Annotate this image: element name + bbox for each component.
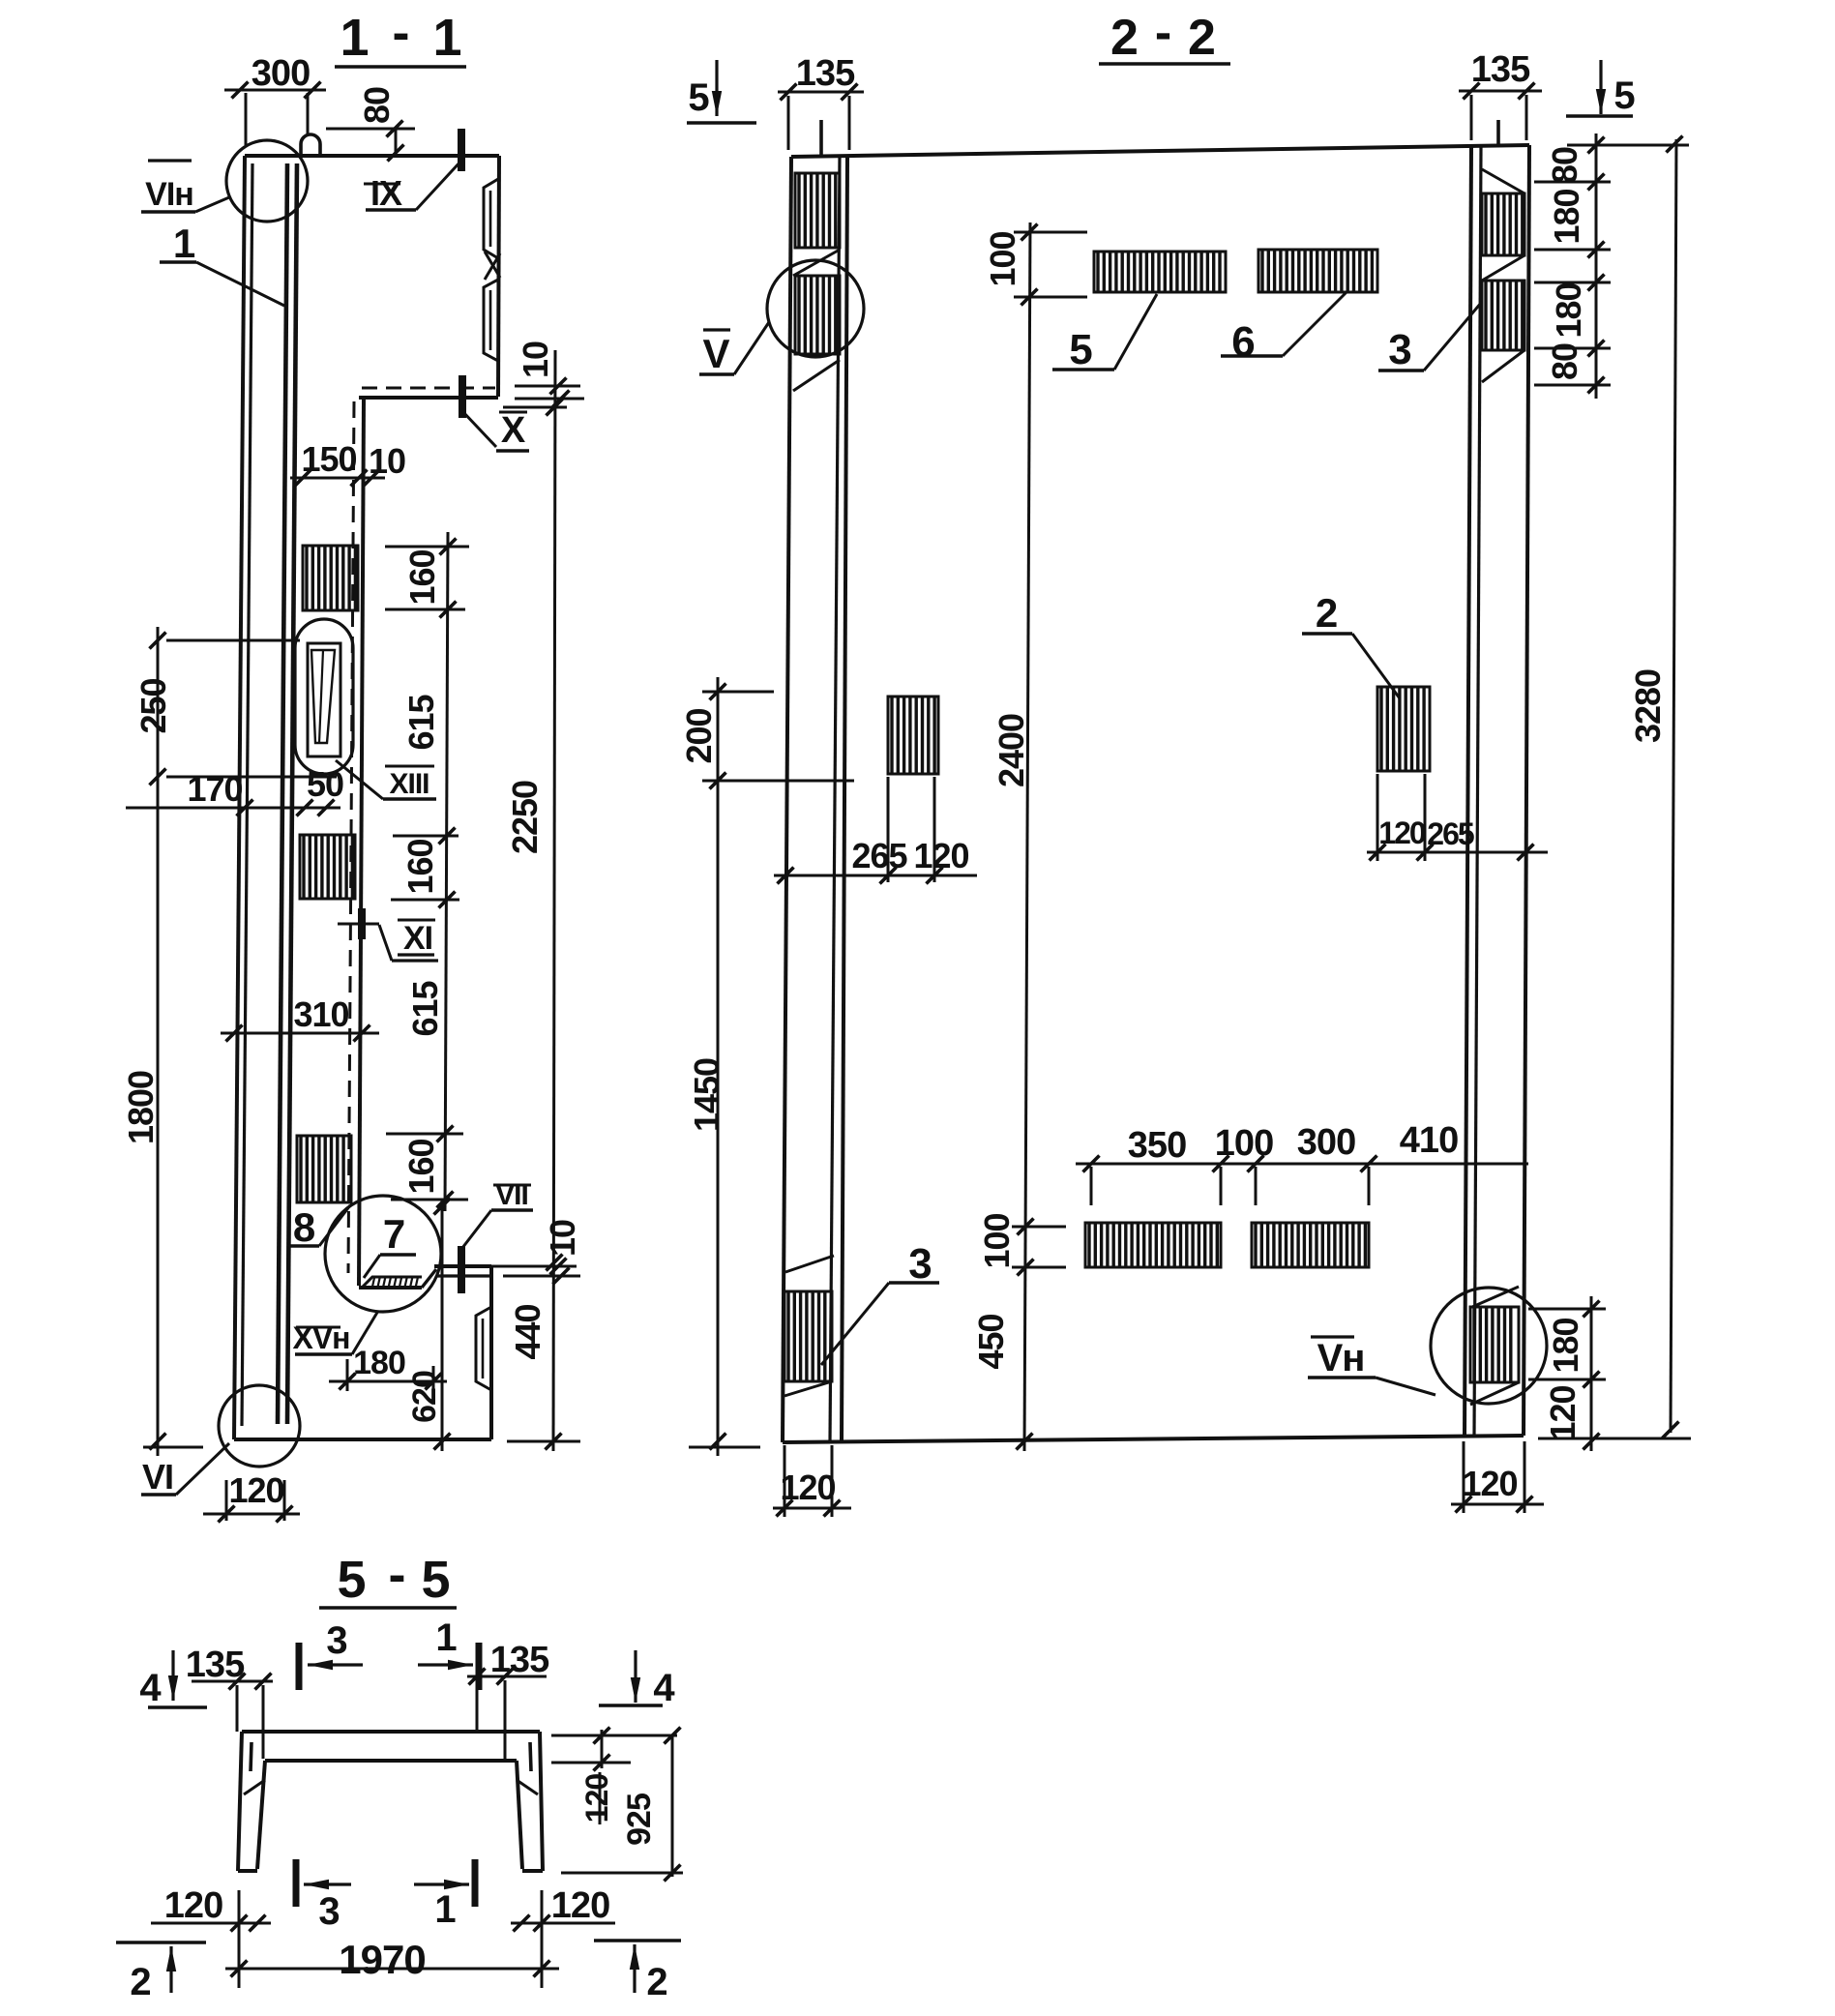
svg-text:135: 135 <box>186 1645 245 1685</box>
svg-text:450: 450 <box>971 1314 1011 1369</box>
svg-text:2: 2 <box>1188 10 1215 66</box>
svg-text:6: 6 <box>1231 318 1254 366</box>
svg-text:2400: 2400 <box>991 714 1031 787</box>
svg-text:3: 3 <box>908 1240 931 1288</box>
svg-text:120: 120 <box>579 1774 614 1823</box>
svg-text:V: V <box>702 331 729 376</box>
svg-text:120: 120 <box>780 1468 835 1507</box>
svg-text:180: 180 <box>1546 1318 1585 1373</box>
svg-text:120: 120 <box>913 836 968 875</box>
svg-text:1: 1 <box>173 221 195 266</box>
svg-text:160: 160 <box>402 549 442 605</box>
svg-text:300: 300 <box>252 53 310 94</box>
svg-text:120: 120 <box>1543 1385 1583 1440</box>
svg-text:1: 1 <box>432 9 460 67</box>
svg-text:350: 350 <box>1128 1125 1186 1166</box>
svg-text:1450: 1450 <box>687 1058 726 1132</box>
svg-text:XIII: XIII <box>389 768 429 800</box>
svg-text:180: 180 <box>1549 282 1588 338</box>
svg-text:300: 300 <box>1297 1122 1355 1163</box>
svg-text:265: 265 <box>1427 816 1474 851</box>
svg-text:160: 160 <box>401 1139 441 1194</box>
svg-text:X: X <box>501 410 526 451</box>
svg-text:3: 3 <box>1388 326 1410 373</box>
svg-text:1: 1 <box>435 1616 457 1659</box>
svg-text:-: - <box>1155 5 1170 61</box>
svg-text:410: 410 <box>1400 1120 1458 1161</box>
svg-text:2250: 2250 <box>505 781 545 854</box>
svg-text:925: 925 <box>621 1794 658 1846</box>
svg-text:5: 5 <box>1069 326 1092 373</box>
svg-text:135: 135 <box>490 1640 549 1680</box>
svg-text:310: 310 <box>293 994 348 1034</box>
svg-text:XI: XI <box>403 920 432 957</box>
svg-text:7: 7 <box>383 1211 404 1257</box>
svg-text:120: 120 <box>228 1470 283 1510</box>
svg-text:615: 615 <box>401 694 441 750</box>
svg-text:180: 180 <box>353 1345 405 1381</box>
svg-text:100: 100 <box>977 1213 1017 1268</box>
svg-text:1: 1 <box>434 1888 456 1931</box>
svg-text:180: 180 <box>1547 189 1586 244</box>
svg-text:4: 4 <box>653 1667 675 1709</box>
svg-text:265: 265 <box>851 836 907 875</box>
svg-text:3: 3 <box>318 1890 339 1933</box>
svg-text:1: 1 <box>340 9 368 67</box>
svg-text:VI: VI <box>142 1457 173 1497</box>
svg-text:3280: 3280 <box>1628 669 1668 743</box>
svg-text:160: 160 <box>400 839 440 894</box>
svg-text:2: 2 <box>1110 10 1138 66</box>
svg-text:250: 250 <box>133 678 173 733</box>
svg-text:135: 135 <box>796 53 855 94</box>
svg-text:100: 100 <box>983 231 1022 286</box>
svg-text:10: 10 <box>543 1220 582 1257</box>
svg-text:120: 120 <box>551 1885 609 1926</box>
svg-text:8: 8 <box>293 1204 315 1250</box>
svg-text:120: 120 <box>1462 1464 1517 1503</box>
svg-text:10: 10 <box>369 441 405 481</box>
svg-text:5: 5 <box>1613 74 1635 117</box>
svg-text:2: 2 <box>646 1961 666 2003</box>
svg-text:Vн: Vн <box>1317 1337 1365 1379</box>
svg-text:120: 120 <box>1378 815 1426 850</box>
svg-text:3: 3 <box>326 1619 346 1662</box>
svg-text:80: 80 <box>1545 343 1584 380</box>
svg-text:50: 50 <box>307 764 343 804</box>
svg-text:4: 4 <box>139 1667 162 1709</box>
svg-text:1800: 1800 <box>121 1071 161 1144</box>
svg-text:80: 80 <box>1545 147 1584 184</box>
svg-text:2: 2 <box>1316 590 1337 636</box>
svg-text:80: 80 <box>357 87 397 124</box>
svg-text:2: 2 <box>130 1961 150 2003</box>
svg-text:5: 5 <box>337 1551 365 1609</box>
svg-text:440: 440 <box>508 1304 548 1359</box>
svg-text:150: 150 <box>301 439 356 479</box>
svg-text:IX: IX <box>370 173 402 213</box>
svg-text:XVн: XVн <box>292 1320 349 1355</box>
svg-text:120: 120 <box>164 1885 222 1926</box>
svg-text:5: 5 <box>688 76 709 119</box>
svg-text:10: 10 <box>516 341 555 378</box>
svg-text:VIн: VIн <box>145 176 193 213</box>
svg-text:1970: 1970 <box>339 1937 425 1982</box>
svg-text:170: 170 <box>187 769 242 809</box>
svg-text:135: 135 <box>1471 49 1530 90</box>
svg-text:620: 620 <box>406 1371 443 1423</box>
svg-text:5: 5 <box>421 1551 449 1609</box>
svg-text:-: - <box>389 1546 405 1604</box>
svg-text:-: - <box>393 4 409 62</box>
svg-text:100: 100 <box>1215 1123 1273 1164</box>
svg-text:615: 615 <box>405 980 445 1036</box>
svg-text:VII: VII <box>495 1179 528 1211</box>
svg-text:200: 200 <box>679 708 719 763</box>
